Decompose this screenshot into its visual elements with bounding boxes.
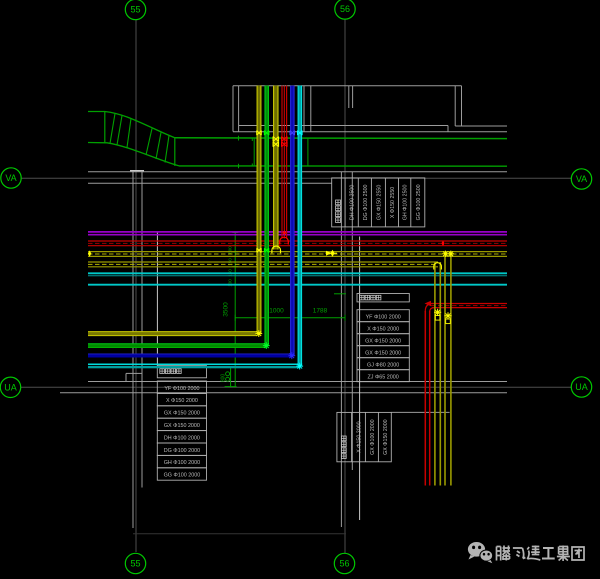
svg-text:56: 56 (339, 559, 349, 569)
svg-text:UA: UA (575, 382, 588, 392)
svg-text:1788: 1788 (313, 308, 328, 315)
svg-text:GG Φ100 2000: GG Φ100 2000 (164, 473, 201, 479)
svg-text:GX Φ150 2000: GX Φ150 2000 (365, 338, 401, 344)
svg-text:VA: VA (5, 173, 16, 183)
svg-text:VA: VA (576, 174, 587, 184)
svg-text:GH Φ100 2000: GH Φ100 2000 (164, 460, 200, 466)
svg-text:800: 800 (221, 374, 227, 383)
svg-text:600: 600 (228, 246, 233, 254)
svg-text:YF Φ100 2000: YF Φ100 2000 (164, 386, 199, 392)
svg-text:DH Φ100 2000: DH Φ100 2000 (164, 435, 200, 441)
svg-text:GX Φ150 2550: GX Φ150 2550 (376, 185, 382, 220)
svg-text:ZJ Φ65 2000: ZJ Φ65 2000 (368, 374, 399, 380)
svg-text:GH Φ100 2500: GH Φ100 2500 (403, 184, 409, 220)
svg-text:X Φ150 2550: X Φ150 2550 (390, 187, 396, 218)
svg-text:55: 55 (130, 559, 140, 569)
svg-text:DG Φ100 2500: DG Φ100 2500 (363, 184, 369, 220)
svg-text:GX Φ150 2000: GX Φ150 2000 (164, 423, 200, 429)
svg-text:56: 56 (340, 4, 350, 14)
svg-text:DH Φ100 2500: DH Φ100 2500 (350, 185, 356, 220)
svg-text:X Φ150 2000: X Φ150 2000 (166, 398, 198, 404)
svg-text:X Φ150 2000: X Φ150 2000 (367, 326, 399, 332)
svg-text:X Φ150 2000: X Φ150 2000 (357, 421, 363, 452)
svg-text:GX Φ150 2000: GX Φ150 2000 (383, 419, 389, 454)
svg-text:GX Φ100 2000: GX Φ100 2000 (370, 419, 376, 454)
svg-text:GX Φ150 2000: GX Φ150 2000 (365, 350, 401, 356)
svg-text:DG Φ100 2000: DG Φ100 2000 (164, 448, 200, 454)
svg-text:1000: 1000 (269, 308, 284, 315)
svg-text:55: 55 (130, 5, 140, 15)
svg-text:GJ Φ80 2000: GJ Φ80 2000 (367, 362, 399, 368)
svg-text:3500: 3500 (223, 302, 230, 317)
svg-text:YF Φ100 2000: YF Φ100 2000 (366, 314, 401, 320)
svg-text:GG Φ100 2500: GG Φ100 2500 (416, 184, 422, 220)
svg-text:GX Φ150 2000: GX Φ150 2000 (164, 411, 200, 417)
svg-text:UA: UA (4, 383, 17, 393)
